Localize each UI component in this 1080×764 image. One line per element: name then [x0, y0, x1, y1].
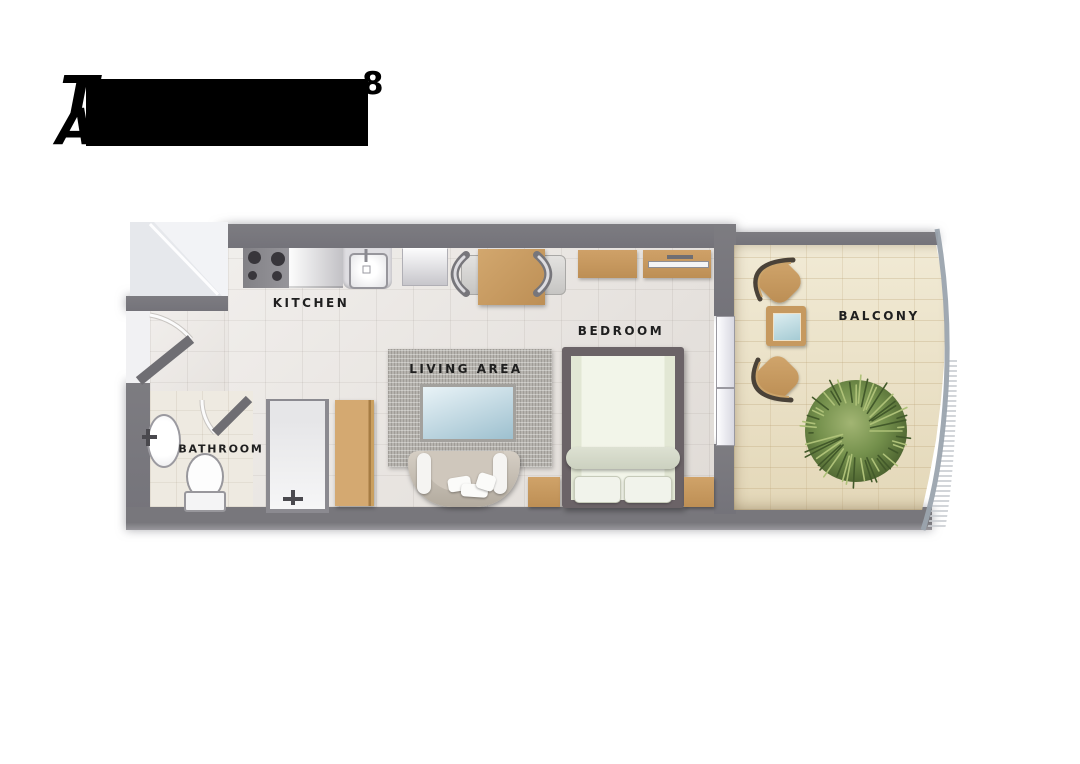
title-superscript: 8	[362, 69, 384, 100]
bed-pillow-right	[624, 476, 672, 503]
wall-top	[228, 224, 736, 248]
sliding-door-panel-1	[716, 316, 735, 388]
sofa-arm-cushion-right	[493, 453, 507, 494]
stove-burner	[271, 252, 285, 266]
entrance-threshold	[126, 311, 150, 383]
nightstand-right	[684, 477, 714, 507]
room-label-living-area: LIVING AREA	[409, 362, 522, 376]
wall-bottom	[126, 507, 932, 530]
room-label-balcony: BALCONY	[838, 309, 919, 323]
desk-shelf	[648, 261, 709, 268]
bed-blanket	[566, 447, 680, 469]
storage-cabinet	[578, 250, 637, 278]
balcony-table-glass	[773, 313, 801, 341]
room-label-bathroom: BATHROOM	[178, 443, 263, 456]
desk-shelf-upper	[667, 255, 693, 259]
sliding-door-panel-2	[716, 388, 735, 446]
wall-balcony-top	[736, 232, 938, 245]
room-label-bedroom: BEDROOM	[578, 324, 664, 338]
stove-burner	[248, 271, 257, 280]
sofa-arm-cushion-left	[417, 453, 431, 494]
stove-burner	[248, 251, 261, 264]
wall-balcony-door-top	[714, 224, 736, 316]
kitchen-counter	[289, 248, 343, 288]
floor-plan-page: T A 8	[0, 0, 1080, 764]
room-label-kitchen: KITCHEN	[273, 296, 350, 310]
kitchen-sink-basin	[349, 253, 388, 289]
stove-burner	[272, 271, 282, 281]
tv-screen	[420, 384, 516, 442]
dining-table	[478, 249, 545, 305]
wall-balcony-door-bottom	[714, 444, 736, 514]
toilet-tank	[184, 491, 226, 512]
bed-pillow-left	[574, 476, 621, 503]
wall-entry	[126, 296, 228, 311]
wardrobe	[335, 400, 374, 506]
bathroom-sink	[147, 414, 181, 468]
fridge	[402, 248, 448, 286]
shower-tray	[266, 399, 329, 513]
title-redaction-block	[86, 79, 368, 146]
side-table	[528, 477, 560, 507]
